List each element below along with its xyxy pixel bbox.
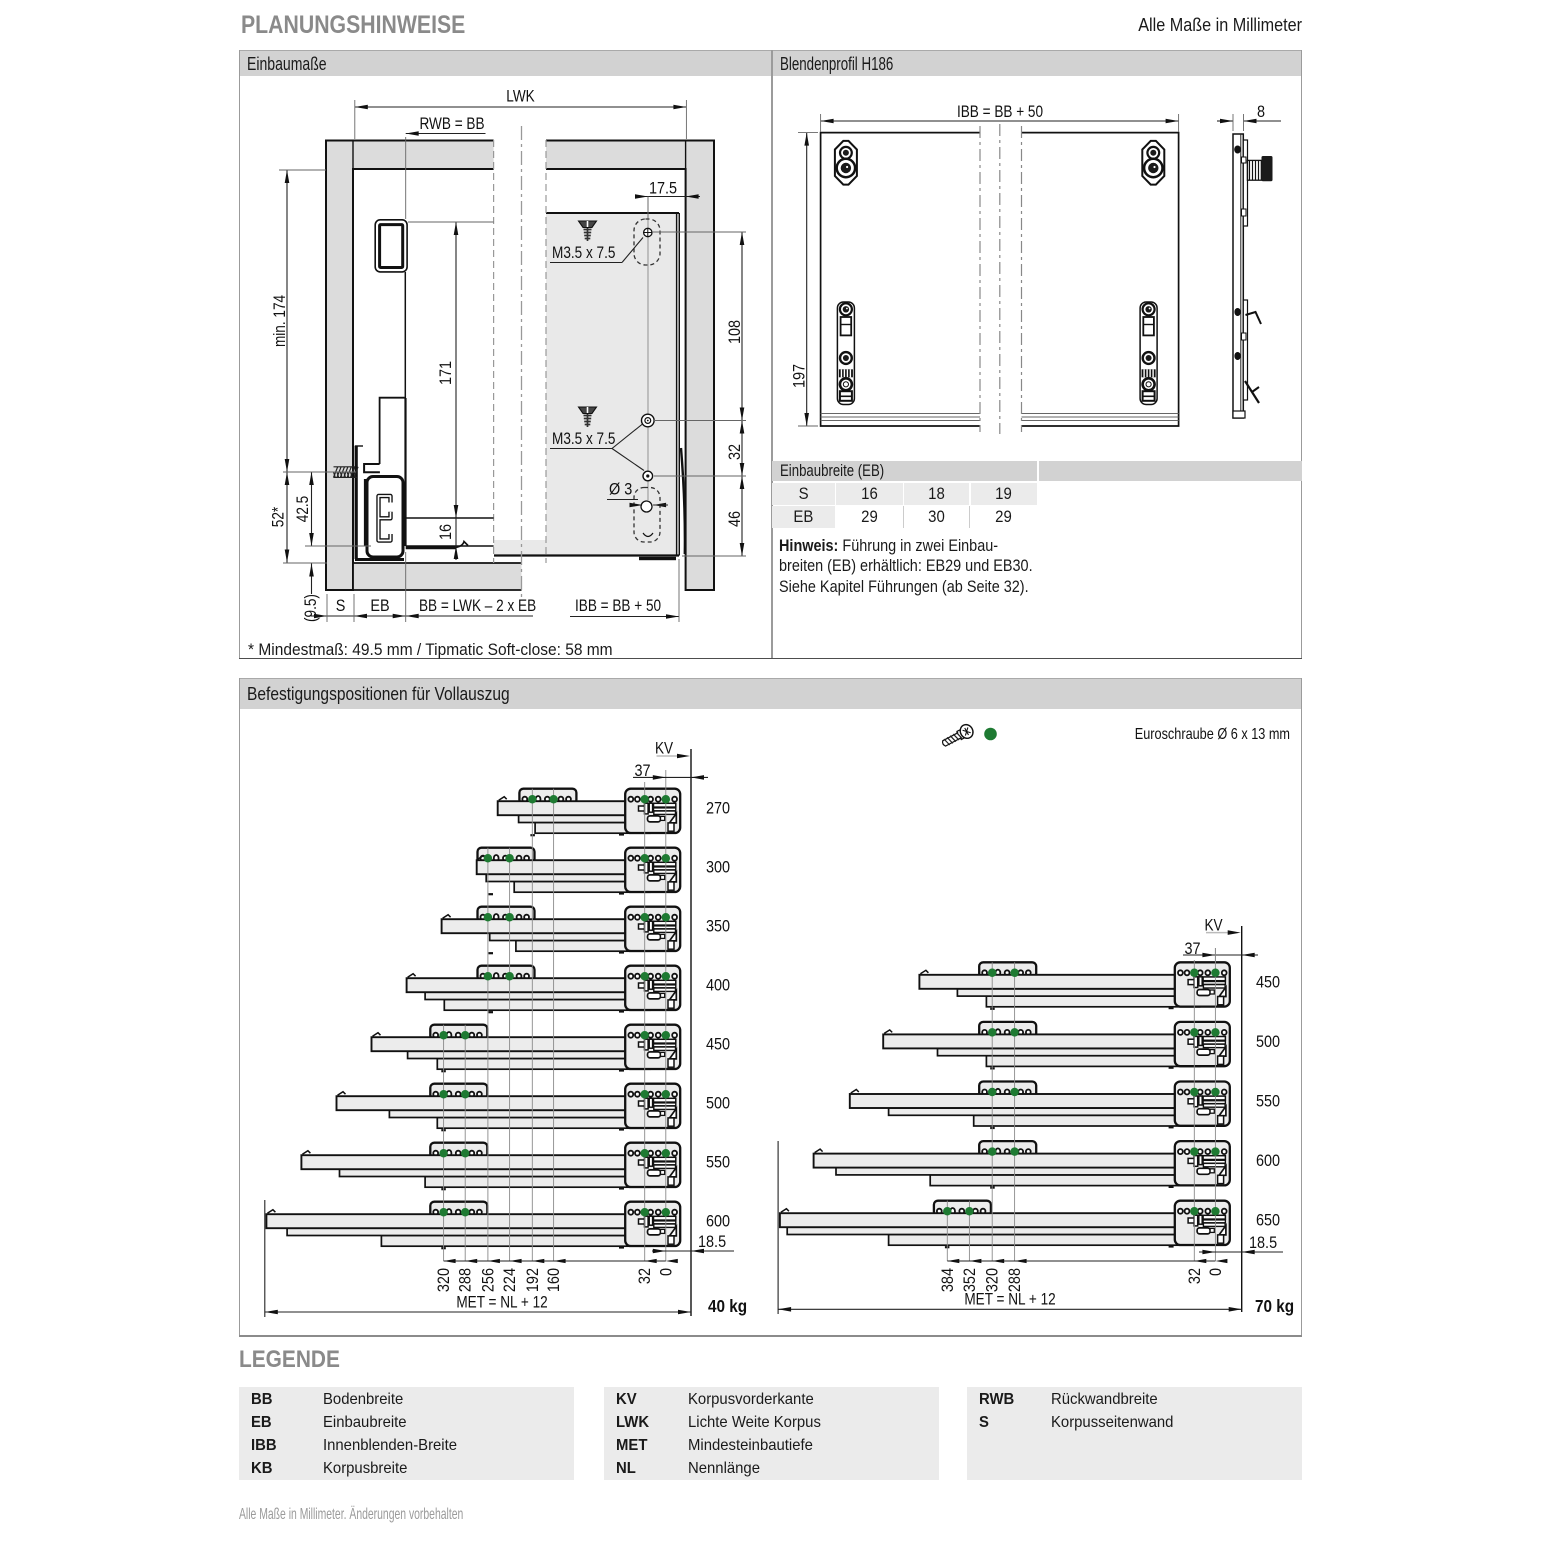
- svg-text:EB: EB: [370, 597, 389, 615]
- svg-text:32: 32: [636, 1268, 654, 1284]
- svg-text:450: 450: [1256, 973, 1280, 991]
- svg-text:450: 450: [706, 1036, 730, 1054]
- svg-text:46: 46: [726, 511, 744, 527]
- svg-text:8: 8: [1257, 103, 1265, 121]
- svg-text:160: 160: [545, 1268, 563, 1292]
- svg-text:40 kg: 40 kg: [708, 1296, 747, 1316]
- svg-text:224: 224: [501, 1268, 519, 1292]
- svg-text:352: 352: [961, 1268, 979, 1292]
- svg-text:32: 32: [726, 444, 744, 460]
- svg-text:KV: KV: [655, 739, 674, 758]
- svg-text:192: 192: [524, 1268, 542, 1292]
- svg-text:BB = LWK – 2 x EB: BB = LWK – 2 x EB: [419, 597, 536, 616]
- svg-text:197: 197: [790, 364, 808, 388]
- svg-text:RWB = BB: RWB = BB: [419, 115, 484, 134]
- svg-text:550: 550: [1256, 1092, 1280, 1110]
- svg-text:min. 174: min. 174: [271, 295, 290, 347]
- svg-text:500: 500: [1256, 1033, 1280, 1051]
- svg-text:320: 320: [435, 1268, 453, 1292]
- svg-text:IBB = BB + 50: IBB = BB + 50: [575, 597, 661, 616]
- svg-text:32: 32: [1186, 1268, 1204, 1284]
- svg-text:350: 350: [706, 918, 730, 936]
- svg-text:M3.5 x 7.5: M3.5 x 7.5: [552, 244, 615, 263]
- svg-text:0: 0: [1207, 1268, 1225, 1276]
- svg-text:270: 270: [706, 800, 730, 818]
- svg-text:MET = NL + 12: MET = NL + 12: [964, 1290, 1055, 1309]
- svg-text:400: 400: [706, 977, 730, 995]
- svg-text:Euroschraube Ø 6 x 13 mm: Euroschraube Ø 6 x 13 mm: [1135, 726, 1290, 743]
- svg-text:37: 37: [1184, 940, 1200, 958]
- svg-text:52*: 52*: [269, 507, 288, 527]
- svg-text:37: 37: [634, 762, 650, 780]
- svg-text:550: 550: [706, 1154, 730, 1172]
- svg-text:(9.5): (9.5): [302, 594, 321, 622]
- svg-text:288: 288: [457, 1268, 475, 1292]
- svg-text:256: 256: [479, 1268, 497, 1292]
- svg-text:600: 600: [706, 1213, 730, 1231]
- svg-text:18.5: 18.5: [698, 1233, 726, 1251]
- svg-text:384: 384: [939, 1268, 957, 1292]
- svg-text:S: S: [336, 597, 346, 615]
- svg-text:42.5: 42.5: [294, 496, 313, 522]
- svg-text:108: 108: [726, 320, 744, 344]
- svg-text:0: 0: [657, 1268, 675, 1276]
- svg-text:70 kg: 70 kg: [1255, 1296, 1294, 1316]
- svg-text:Ø 3: Ø 3: [609, 480, 632, 498]
- svg-text:17.5: 17.5: [649, 179, 677, 197]
- svg-text:288: 288: [1006, 1268, 1024, 1292]
- svg-text:M3.5 x 7.5: M3.5 x 7.5: [552, 430, 615, 449]
- svg-text:320: 320: [984, 1268, 1002, 1292]
- svg-text:500: 500: [706, 1095, 730, 1113]
- svg-text:300: 300: [706, 859, 730, 877]
- svg-text:16: 16: [437, 524, 455, 540]
- svg-text:LWK: LWK: [506, 87, 535, 106]
- svg-text:18.5: 18.5: [1249, 1234, 1277, 1252]
- svg-text:650: 650: [1256, 1212, 1280, 1230]
- svg-text:600: 600: [1256, 1152, 1280, 1170]
- svg-text:171: 171: [437, 361, 455, 385]
- svg-text:MET = NL + 12: MET = NL + 12: [456, 1293, 547, 1312]
- svg-text:IBB = BB + 50: IBB = BB + 50: [957, 103, 1043, 122]
- svg-text:KV: KV: [1204, 916, 1223, 935]
